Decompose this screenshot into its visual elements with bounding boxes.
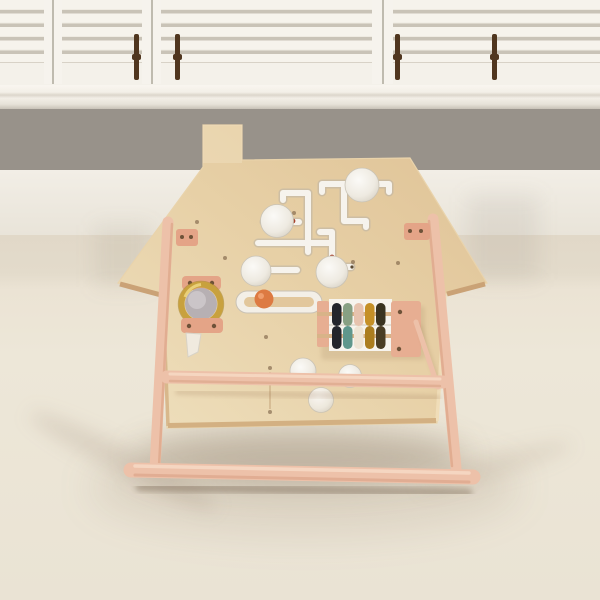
abacus-bead xyxy=(354,303,364,326)
abacus xyxy=(317,299,425,360)
maze-knob xyxy=(261,205,294,238)
screw xyxy=(268,366,272,370)
screw xyxy=(292,211,296,215)
screw xyxy=(351,260,355,264)
hinge-screw xyxy=(419,229,423,233)
abacus-post-left xyxy=(317,301,329,347)
photo-scene: Photograph of a natural wood house-shape… xyxy=(0,0,600,600)
abacus-bead xyxy=(365,303,375,326)
abacus-beads-top xyxy=(332,303,386,326)
slot-island xyxy=(244,297,314,307)
maze-marker-dot xyxy=(350,265,353,268)
slider-bead xyxy=(255,290,274,309)
chimney-highlight xyxy=(203,125,242,163)
slider-slot xyxy=(236,290,322,314)
abacus-bead xyxy=(376,303,386,326)
abacus-bead xyxy=(376,326,386,349)
abacus-bead xyxy=(343,326,353,349)
abacus-bead xyxy=(332,326,342,349)
mirror-sheen xyxy=(188,291,206,309)
abacus-bead xyxy=(343,303,353,326)
maze-knob xyxy=(345,168,379,202)
screw xyxy=(396,261,400,265)
hinge-screw xyxy=(189,235,193,239)
screw xyxy=(264,335,268,339)
abacus-beads-bottom xyxy=(332,326,386,349)
bracket-screw xyxy=(212,324,216,328)
abacus-bead xyxy=(365,326,375,349)
hinge-screw xyxy=(408,229,412,233)
hinge-right xyxy=(404,223,430,240)
maze-knob xyxy=(241,256,271,286)
screw xyxy=(268,410,272,414)
abacus-bead xyxy=(354,326,364,349)
abacus-screw xyxy=(397,347,401,351)
slider-bead-highlight xyxy=(258,293,264,299)
screw xyxy=(195,220,199,224)
bracket-screw xyxy=(187,324,191,328)
loose-knob xyxy=(309,388,334,413)
screw xyxy=(223,256,227,260)
hinge-left xyxy=(176,229,198,246)
footbar-shadow xyxy=(140,487,468,493)
hinge-screw xyxy=(180,235,184,239)
abacus-bead xyxy=(332,303,342,326)
busy-board-toy xyxy=(0,0,600,600)
abacus-screw xyxy=(398,310,402,314)
maze-knob xyxy=(316,256,348,288)
